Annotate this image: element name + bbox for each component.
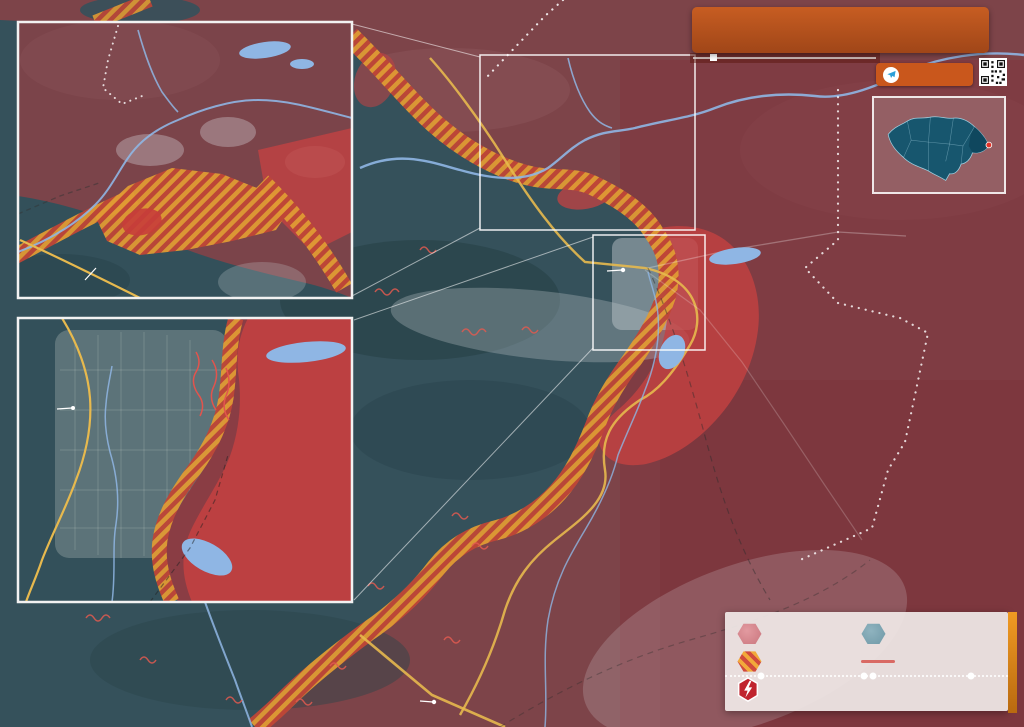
clash-icon bbox=[737, 677, 759, 702]
banner-square bbox=[710, 54, 717, 61]
banner-line bbox=[693, 57, 876, 59]
banner-underline bbox=[690, 53, 880, 63]
legend-item-clash bbox=[737, 677, 855, 702]
powerline-dot bbox=[870, 673, 877, 680]
powerline-dot bbox=[861, 673, 868, 680]
legend-accent-bar bbox=[1008, 612, 1017, 713]
powerline-dot bbox=[758, 673, 765, 680]
legend-panel bbox=[725, 612, 1008, 711]
legend-item-ua bbox=[861, 623, 1000, 645]
rybar-badge[interactable] bbox=[876, 63, 973, 86]
location-marker bbox=[986, 142, 992, 148]
legend-item-combat bbox=[737, 650, 855, 672]
combat-zone-icon bbox=[737, 650, 762, 672]
rf-control-icon bbox=[737, 623, 762, 645]
title-banner bbox=[692, 7, 989, 53]
ua-control-icon bbox=[861, 623, 886, 645]
legend-item-ukrep bbox=[861, 660, 1000, 663]
map-canvas bbox=[0, 0, 1024, 727]
ukraine-minimap bbox=[872, 96, 1006, 194]
fortified-line-icon bbox=[861, 660, 895, 663]
qr-code bbox=[979, 58, 1007, 86]
legend-item-rf bbox=[737, 623, 855, 645]
telegram-icon bbox=[883, 67, 899, 83]
powerline-dot bbox=[968, 673, 975, 680]
